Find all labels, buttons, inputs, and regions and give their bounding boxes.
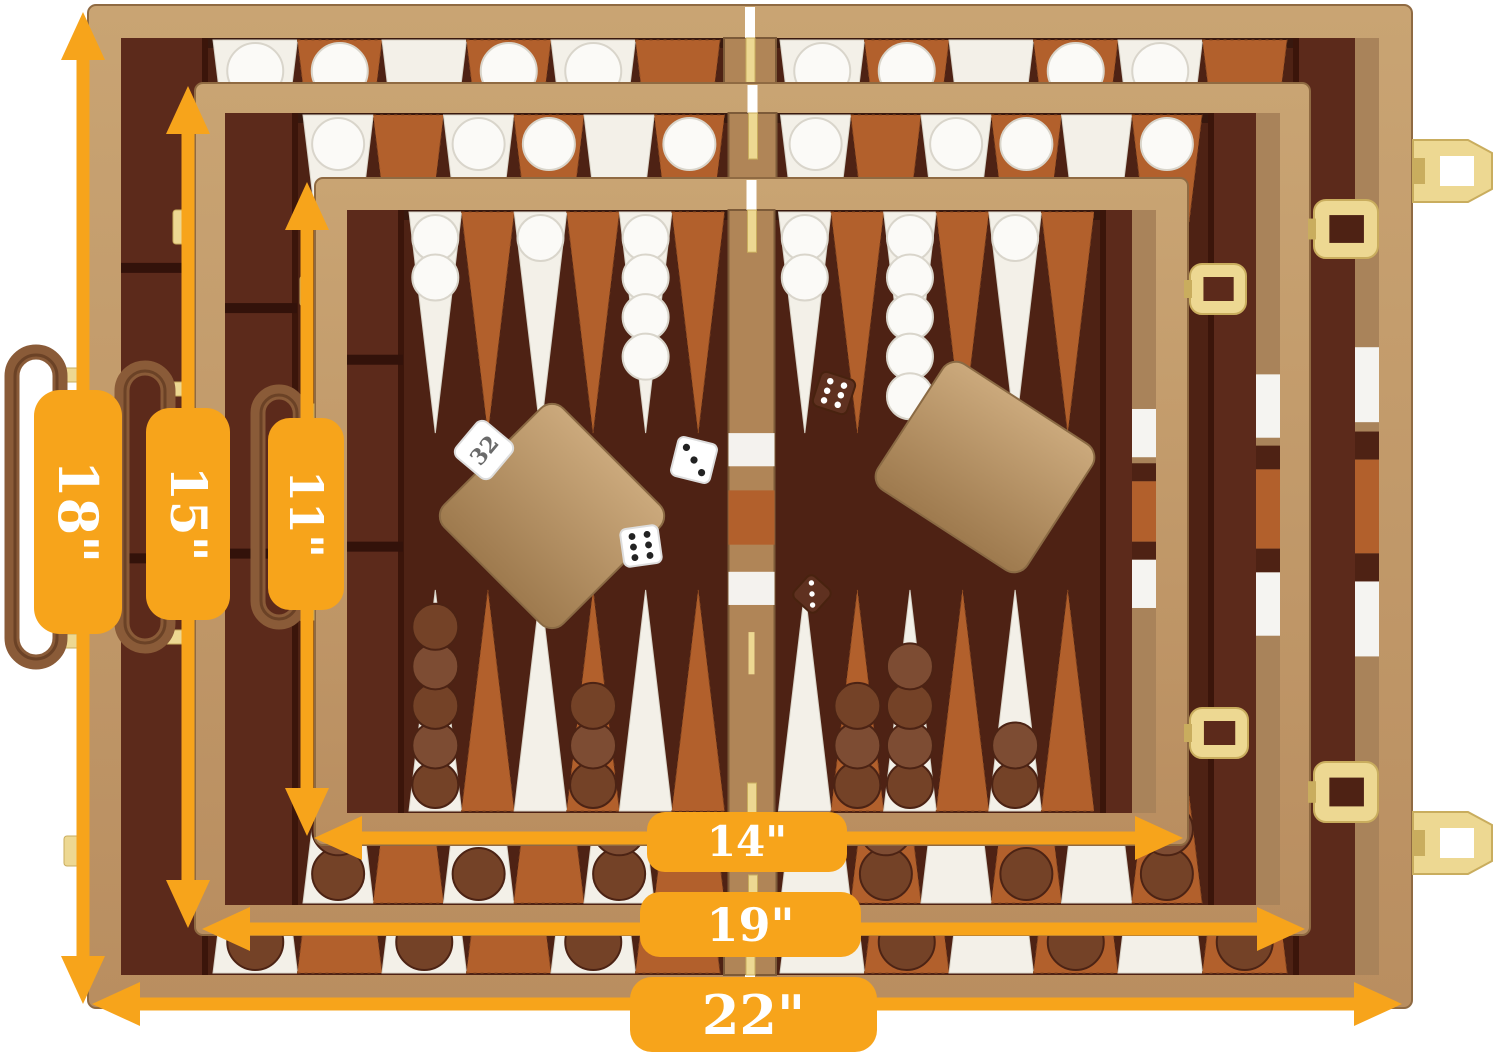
checker-white (1000, 118, 1052, 170)
checker-brown (453, 848, 505, 900)
checker-brown (1000, 848, 1052, 900)
checker-white (623, 334, 669, 380)
checker-brown (887, 643, 933, 689)
checker-white (782, 255, 828, 301)
checker-white (930, 118, 982, 170)
latch-loop (1308, 200, 1378, 258)
dimension-label-22in: 22" (630, 977, 877, 1052)
gold-hinge-icon (749, 113, 758, 159)
gold-hinge-icon (748, 210, 757, 252)
dimension-label-19in: 19" (640, 892, 861, 957)
dimension-label-11in: 11" (268, 418, 344, 610)
checker-brown (834, 683, 880, 729)
side-strap-column (1256, 113, 1280, 905)
dimension-label-18in: 18" (34, 390, 122, 634)
dimension-label-15in: 15" (146, 408, 230, 620)
checker-white (992, 215, 1038, 261)
checker-white (453, 118, 505, 170)
center-hinge-bar (729, 210, 775, 813)
checker-brown (570, 683, 616, 729)
checker-white (790, 118, 842, 170)
checker-brown (412, 604, 458, 650)
side-strap-column (1355, 38, 1379, 975)
checker-white (412, 255, 458, 301)
die-icon (620, 525, 663, 568)
checker-white (523, 118, 575, 170)
latch-loop (1184, 708, 1248, 758)
backgammon-size-diagram: 32 18" 15" 11" 14" 19" 22" (0, 0, 1500, 1060)
die-icon (670, 436, 718, 484)
checker-white (1141, 118, 1193, 170)
checker-white (312, 118, 364, 170)
case-clasp (1413, 812, 1492, 874)
left-storage-tray (347, 210, 404, 813)
dimension-label-14in: 14" (647, 812, 847, 872)
checker-white (663, 118, 715, 170)
checker-brown (992, 722, 1038, 768)
gold-hinge-icon (748, 783, 757, 813)
side-strap-column (1132, 210, 1156, 813)
latch-loop (1308, 762, 1378, 822)
checker-white (517, 215, 563, 261)
gold-hinge-icon (746, 38, 755, 84)
case-clasp (1413, 140, 1492, 202)
latch-loop (1184, 264, 1246, 314)
